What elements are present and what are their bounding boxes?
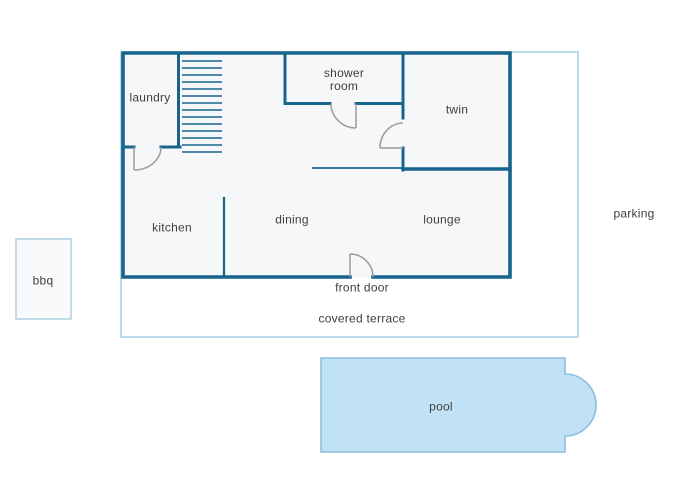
pool-shape: [321, 358, 596, 452]
floor-plan: laundry shower room twin kitchen dining …: [0, 0, 700, 500]
bbq-outline: [16, 239, 71, 319]
house-interior: [123, 53, 510, 277]
floor-plan-drawing: [0, 0, 700, 500]
